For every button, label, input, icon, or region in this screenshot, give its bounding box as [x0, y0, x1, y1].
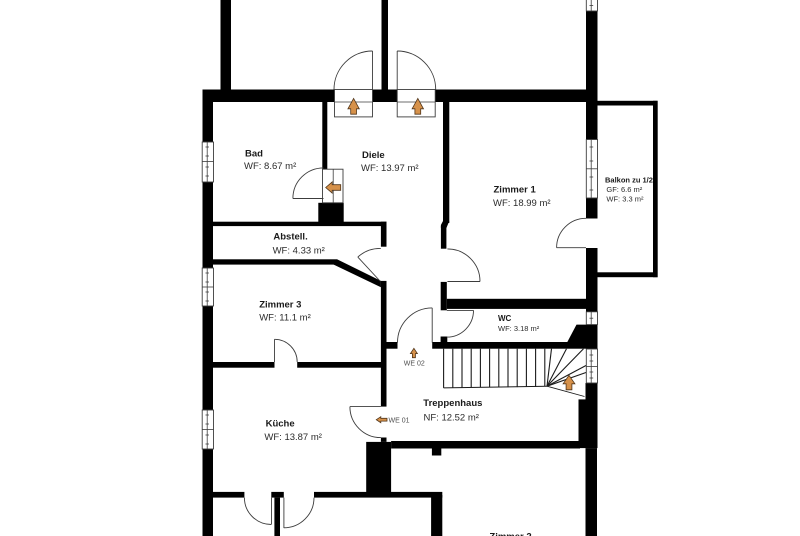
- svg-text:WF: 11.1 m²: WF: 11.1 m²: [259, 313, 311, 324]
- svg-text:Zimmer 2: Zimmer 2: [489, 531, 531, 536]
- svg-text:Diele: Diele: [362, 150, 385, 161]
- svg-text:NF: 12.52 m²: NF: 12.52 m²: [424, 413, 479, 424]
- svg-text:WC: WC: [498, 314, 512, 323]
- svg-text:WF: 13.97 m²: WF: 13.97 m²: [361, 163, 419, 174]
- svg-text:Bad: Bad: [245, 149, 263, 160]
- svg-text:WF: 3.18 m²: WF: 3.18 m²: [498, 324, 540, 333]
- svg-text:WF: 4.33 m²: WF: 4.33 m²: [273, 246, 325, 257]
- svg-text:WF: 3.3 m²: WF: 3.3 m²: [606, 195, 644, 204]
- svg-text:Abstell.: Abstell.: [273, 232, 307, 243]
- svg-text:Zimmer 1: Zimmer 1: [494, 185, 537, 196]
- svg-text:Zimmer 3: Zimmer 3: [259, 300, 301, 311]
- svg-text:Treppenhaus: Treppenhaus: [423, 398, 482, 409]
- svg-text:WF: 8.67 m²: WF: 8.67 m²: [244, 161, 296, 172]
- svg-text:Küche: Küche: [266, 418, 295, 429]
- svg-text:WF: 18.99 m²: WF: 18.99 m²: [493, 198, 551, 209]
- svg-text:WE 01: WE 01: [389, 418, 410, 425]
- svg-text:GF: 6.6 m²: GF: 6.6 m²: [606, 185, 642, 194]
- svg-text:Balkon zu 1/2: Balkon zu 1/2: [605, 175, 653, 184]
- svg-text:WE 02: WE 02: [404, 360, 425, 367]
- svg-text:WF: 13.87 m²: WF: 13.87 m²: [264, 432, 322, 443]
